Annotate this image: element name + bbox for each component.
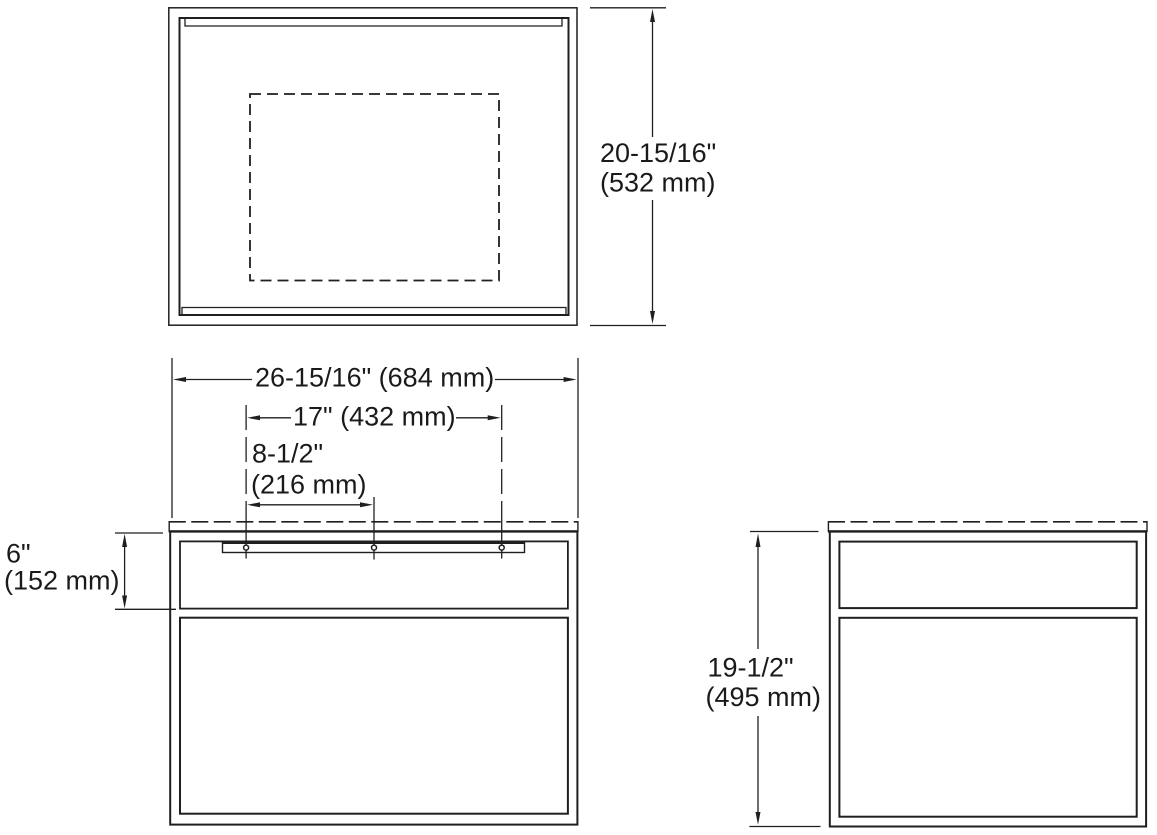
svg-text:8-1/2": 8-1/2" [252,439,323,469]
svg-text:6": 6" [6,539,31,569]
svg-text:(495 mm): (495 mm) [706,682,822,712]
svg-text:(152 mm): (152 mm) [4,566,120,596]
svg-text:19-1/2": 19-1/2" [708,653,794,683]
svg-text:17" (432 mm): 17" (432 mm) [293,402,456,432]
svg-text:(532 mm): (532 mm) [600,167,716,197]
svg-text:26-15/16" (684 mm): 26-15/16" (684 mm) [255,363,494,393]
svg-text:(216 mm): (216 mm) [251,470,367,500]
svg-text:20-15/16": 20-15/16" [600,138,716,168]
